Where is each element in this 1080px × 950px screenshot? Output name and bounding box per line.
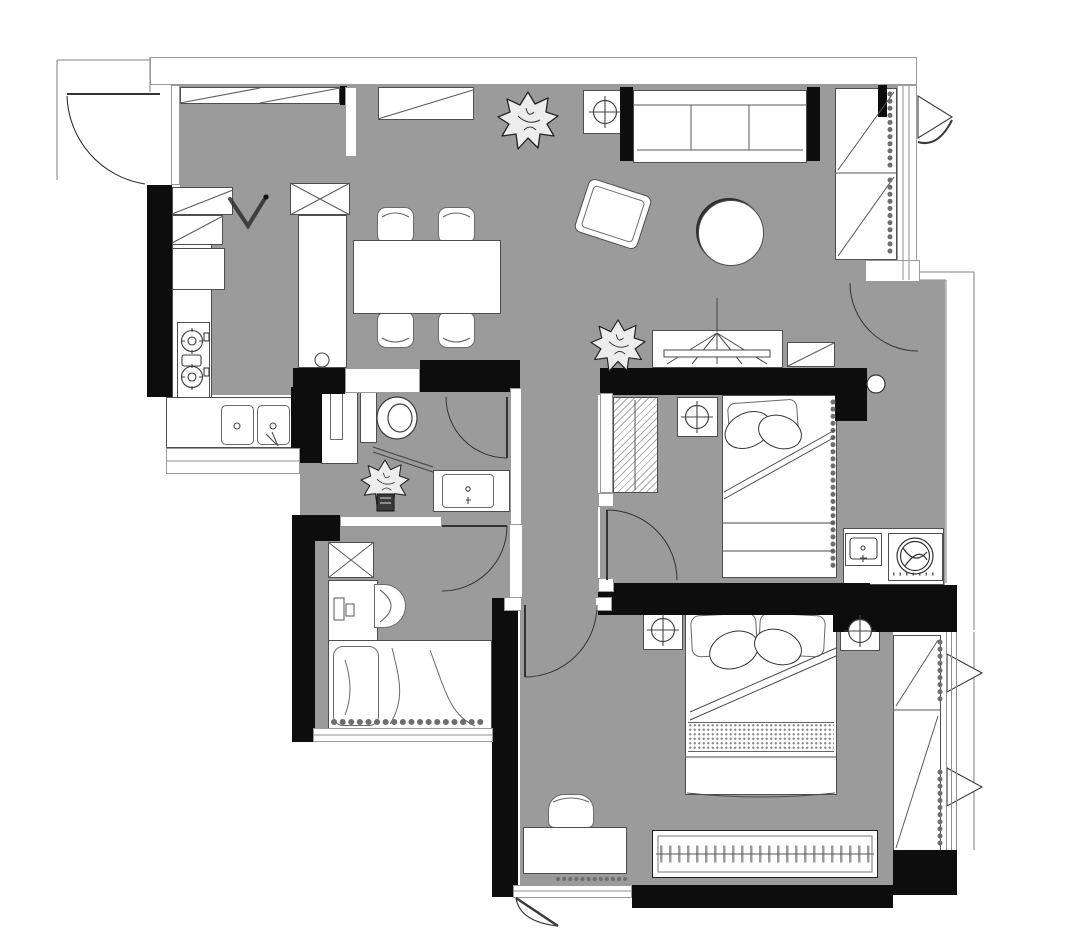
entry-wall-band [171, 85, 180, 185]
study-daybed-pillow [333, 646, 379, 726]
gas-stove [177, 322, 210, 400]
kitchen-cabinet [172, 248, 225, 290]
master-pillow-right [758, 612, 826, 657]
study-window-band [313, 728, 493, 742]
sofa-side-block-left [620, 87, 633, 161]
dressing-table [523, 827, 627, 874]
secondary-bed-pillow [727, 399, 799, 440]
secondary-wardrobe [613, 397, 658, 493]
dining-chair [377, 311, 414, 348]
entry-shoe-closet [180, 87, 340, 104]
wall-under-tv-return [835, 395, 867, 421]
study-desk [328, 580, 378, 642]
wall-bath-northeast [420, 360, 520, 392]
bay-window-glazing-band [897, 85, 917, 280]
wall-study-master-divider [492, 598, 518, 897]
master-pillow-left [690, 612, 758, 657]
dressing-stool [548, 794, 594, 828]
wall-balcony-corner [893, 850, 957, 895]
bath-east-wall [510, 388, 522, 525]
master-door-jamb-right [595, 597, 612, 611]
bath-south-wall [340, 516, 442, 527]
media-cabinet [787, 342, 835, 367]
master-bed-blanket-band [688, 722, 834, 752]
balcony-cabinet [893, 635, 941, 851]
wall-study-west [292, 526, 315, 742]
coffee-table [698, 200, 764, 266]
kitchen-island [298, 215, 347, 368]
dining-table [353, 240, 501, 314]
master-window-band [513, 885, 632, 898]
bath-ledge-shelf [330, 392, 343, 440]
dining-chair [438, 207, 475, 244]
room-hallway-floor [522, 395, 598, 607]
utility-sink [845, 533, 882, 566]
sofa [633, 90, 807, 163]
secondary-nightstand [677, 397, 718, 437]
refrigerator [290, 183, 350, 215]
secondary-door-jamb-top [598, 493, 614, 507]
kitchen-south-wall [166, 448, 300, 474]
master-door-jamb-left [504, 597, 522, 611]
entrance-door [67, 94, 160, 184]
wall-laundry-south [833, 585, 957, 632]
sink-basin-right [257, 405, 290, 445]
sink-basin-left [221, 405, 254, 445]
sofa-side-block-right [807, 87, 820, 161]
kitchen-upper-cabinet [172, 187, 233, 215]
wall-master-south [632, 885, 893, 908]
vanity-sink [442, 474, 494, 508]
bay-window-sill [865, 260, 920, 282]
top-wall-pillar [345, 87, 357, 157]
toilet-tank [360, 392, 377, 443]
kitchen-cabinet-fold [172, 215, 223, 245]
wall-bay-stub [878, 85, 887, 117]
secondary-west-window [600, 393, 613, 493]
floor-plan [0, 0, 1080, 950]
exterior-wall-top [150, 57, 917, 85]
master-nightstand-left [643, 610, 683, 650]
toilet-north-wall [345, 368, 420, 393]
hall-cabinet [378, 87, 474, 120]
bay-window-cabinet [835, 88, 897, 260]
armchair-cushion [581, 185, 646, 244]
dining-chair [438, 311, 475, 348]
wall-under-tv [600, 368, 867, 395]
wall-kitchen-left [147, 185, 172, 397]
wall-master-north [598, 583, 870, 615]
study-storage-cabinet [328, 542, 374, 578]
washing-machine [888, 533, 943, 581]
master-wardrobe [652, 830, 878, 878]
dining-chair [377, 207, 414, 244]
secondary-door-jamb-bottom [598, 578, 614, 592]
tv-console [652, 330, 783, 368]
